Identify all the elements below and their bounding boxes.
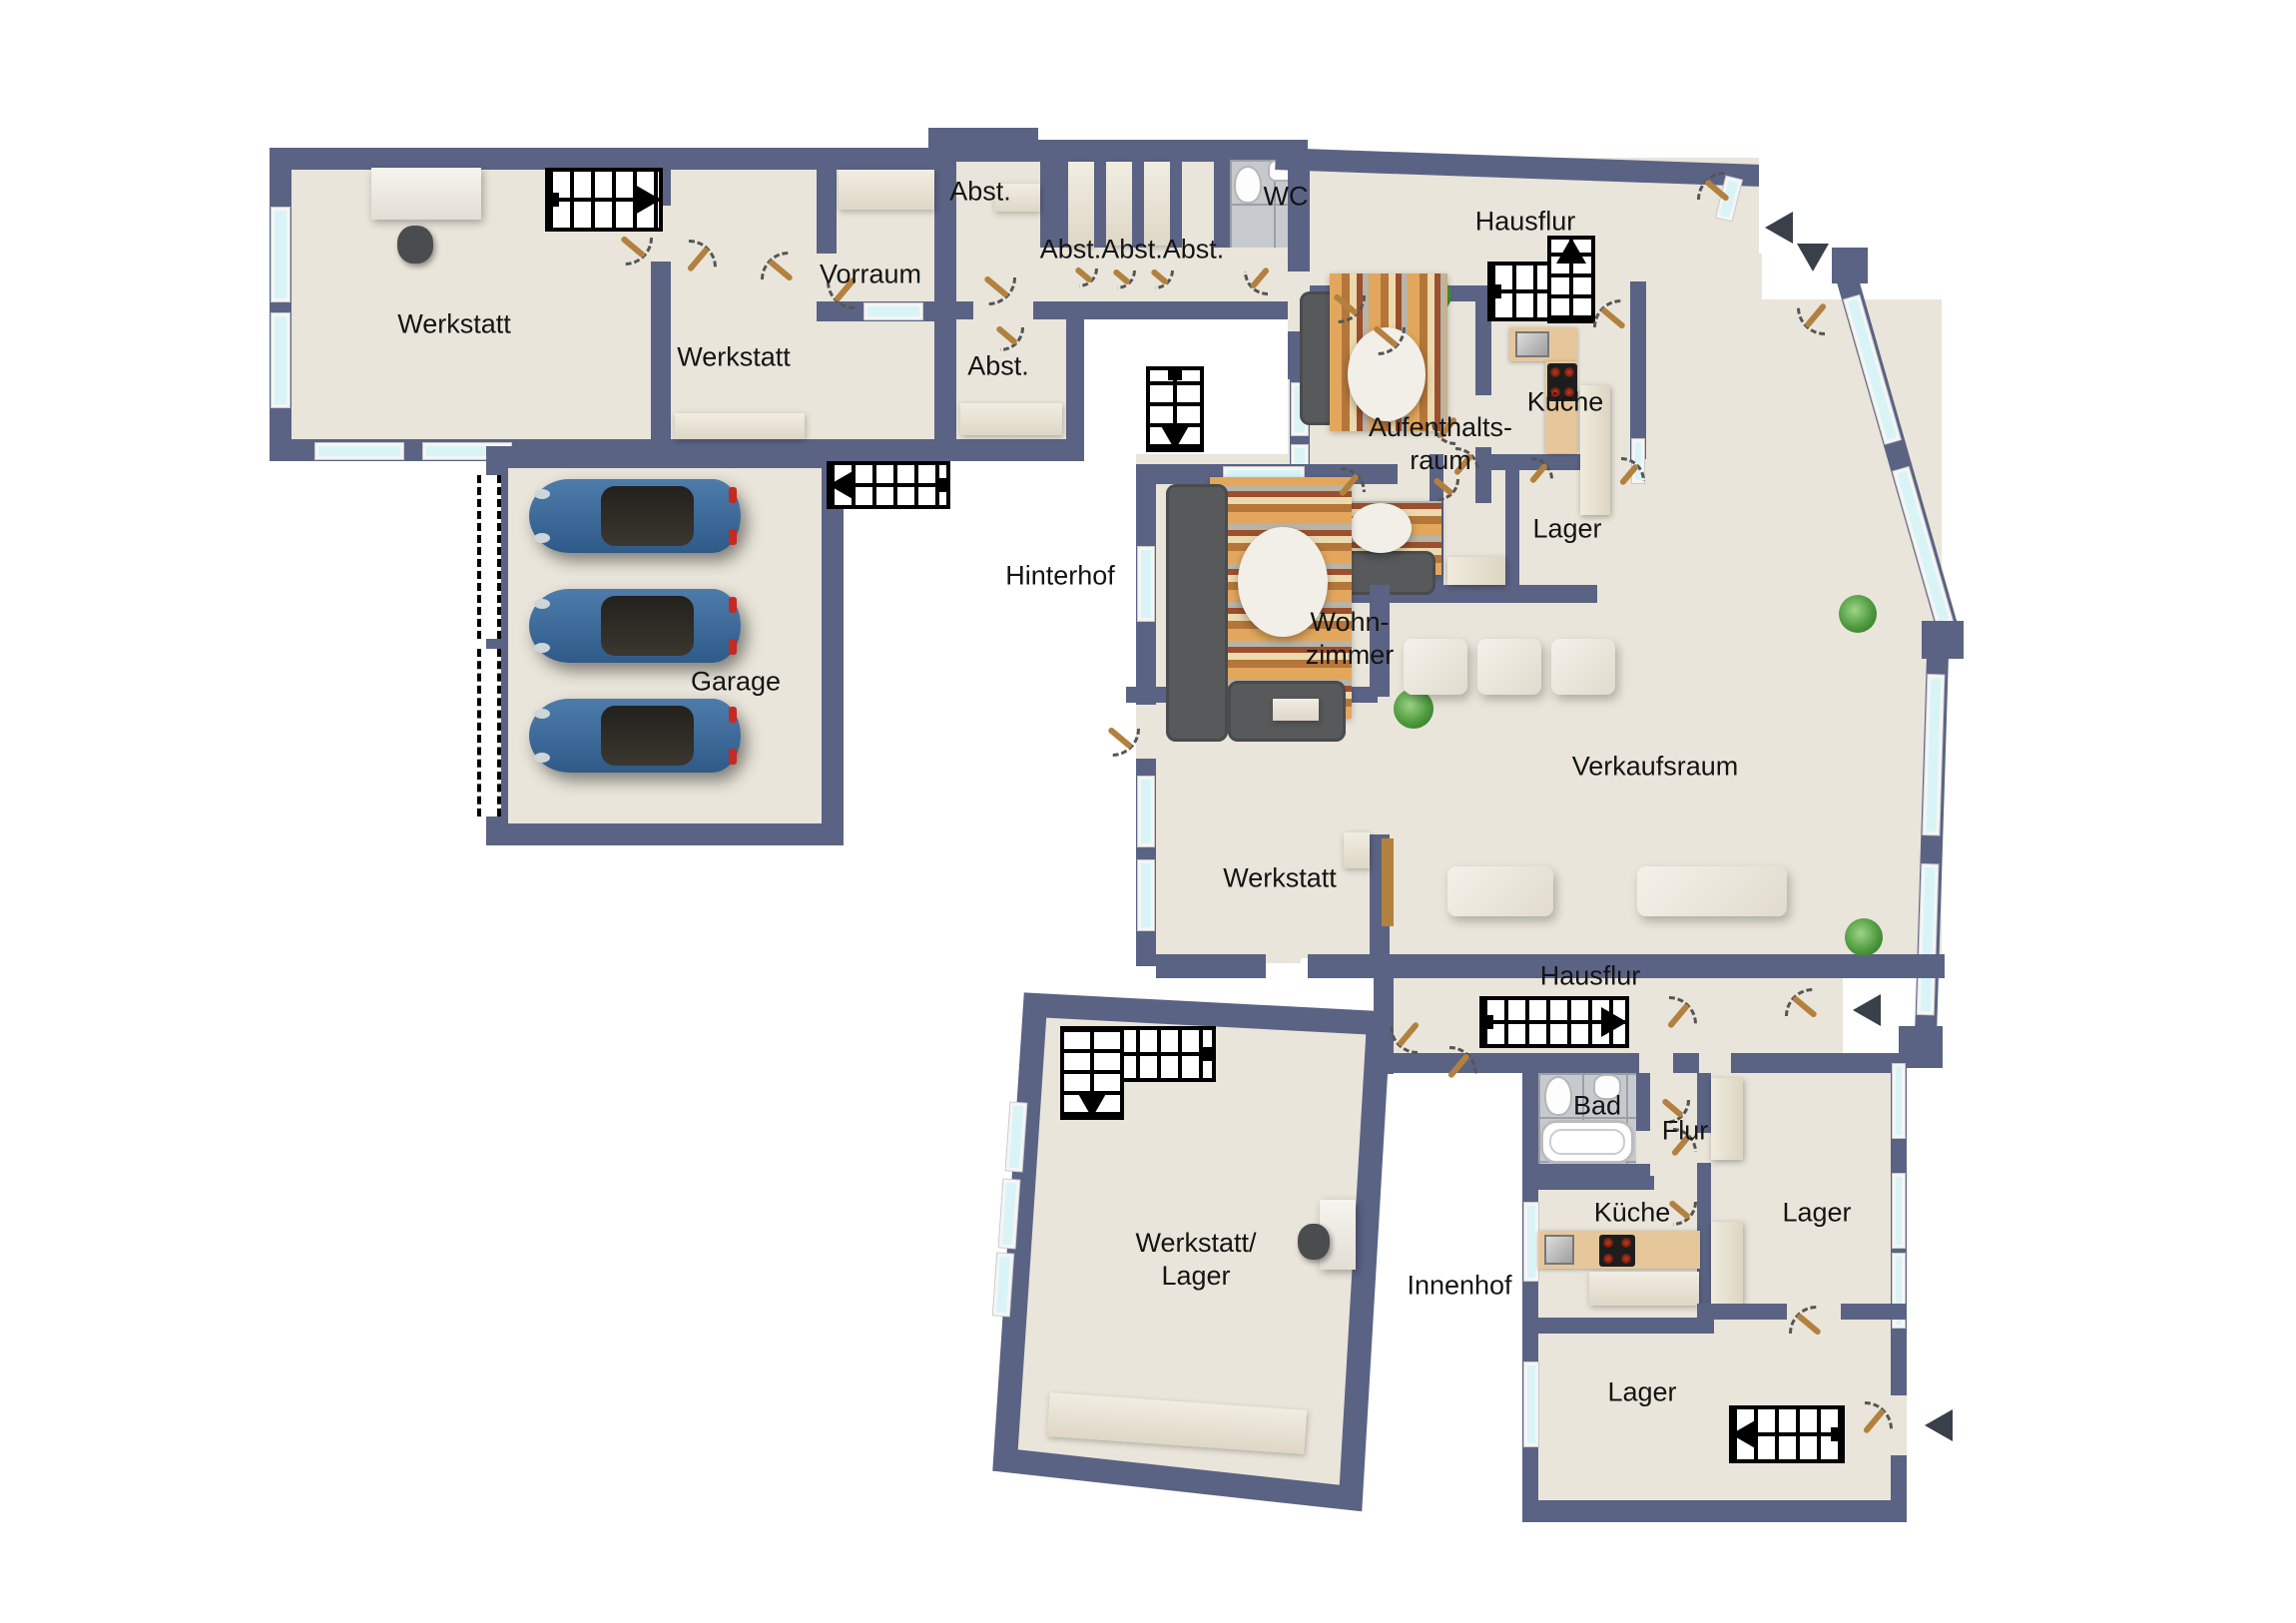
- room-label-werkstatt-lager: Werkstatt/Lager: [1135, 1227, 1256, 1293]
- window: [1893, 1064, 1905, 1138]
- car-headlight-icon: [534, 709, 550, 719]
- room-label-wc: WC: [1264, 181, 1309, 214]
- window: [1138, 860, 1154, 930]
- entry-arrow-icon: [1797, 244, 1829, 271]
- car-headlight-icon: [534, 753, 550, 763]
- door[interactable]: [976, 303, 1024, 351]
- wall: [1731, 1053, 1907, 1073]
- room-label-aufenthaltsraum: Aufenthalts-raum: [1369, 411, 1512, 477]
- entry-arrow-icon: [1765, 212, 1793, 244]
- door[interactable]: [1422, 1046, 1477, 1102]
- stair-start-icon: [545, 193, 559, 207]
- wall: [1922, 621, 1964, 659]
- stairs: [1060, 1026, 1124, 1120]
- office-chair: [397, 226, 433, 264]
- stair-start-icon: [1202, 1047, 1216, 1061]
- desk: [371, 168, 481, 220]
- toilet-icon: [1544, 1076, 1572, 1116]
- car-taillight-icon: [729, 597, 737, 613]
- car: [529, 589, 741, 663]
- wall: [1066, 301, 1084, 459]
- stair-direction-icon: [1160, 424, 1190, 450]
- wall: [486, 446, 844, 468]
- display-table: [1637, 866, 1787, 916]
- stove-icon: [1599, 1235, 1635, 1267]
- car-roof: [601, 706, 694, 767]
- room-label-vorraum: Vorraum: [820, 259, 921, 291]
- room-label-abst-mid: Abst.: [967, 350, 1029, 383]
- shop-window: [1918, 864, 1939, 1014]
- wall: [1378, 1053, 1639, 1073]
- entry-arrow-icon: [1853, 994, 1881, 1026]
- car-headlight-icon: [534, 533, 550, 543]
- room-label-bad: Bad: [1573, 1090, 1621, 1123]
- window: [1138, 777, 1154, 846]
- room-label-abst-row: Abst.Abst.Abst.: [1040, 234, 1225, 267]
- stairs: [1729, 1405, 1845, 1463]
- office-chair: [1298, 1224, 1330, 1260]
- door[interactable]: [1084, 701, 1140, 757]
- room-label-lager-top: Lager: [1532, 513, 1601, 546]
- room-label-wohnzimmer: Wohn-zimmer: [1306, 606, 1395, 672]
- garage-door[interactable]: [477, 475, 501, 639]
- window: [1893, 1174, 1905, 1248]
- wall: [1697, 1304, 1787, 1320]
- stairs: [1146, 366, 1204, 452]
- car-taillight-icon: [729, 529, 737, 545]
- door[interactable]: [761, 252, 817, 307]
- room-label-lager-right: Lager: [1782, 1197, 1851, 1230]
- door[interactable]: [1837, 1401, 1893, 1457]
- display-table: [1447, 866, 1553, 916]
- outdoor-label-hinterhof: Hinterhof: [1005, 560, 1115, 593]
- wall: [1522, 1164, 1650, 1176]
- door[interactable]: [661, 240, 717, 295]
- toilet-icon: [1234, 166, 1262, 204]
- wall: [270, 148, 291, 461]
- room-label-flur: Flur: [1662, 1115, 1709, 1148]
- stair-direction-icon: [1077, 1092, 1107, 1118]
- room-label-werkstatt-mid: Werkstatt: [1223, 862, 1337, 895]
- display-table: [1404, 639, 1467, 695]
- room-label-werkstatt-nw2: Werkstatt: [677, 341, 791, 374]
- stair-direction-icon: [829, 470, 855, 500]
- shelf: [839, 170, 934, 210]
- room-label-kueche-low: Küche: [1594, 1197, 1671, 1230]
- door[interactable]: [1789, 1306, 1845, 1361]
- shelf: [960, 403, 1062, 435]
- car-roof: [601, 596, 694, 657]
- wall: [486, 823, 844, 845]
- wall: [934, 439, 1084, 461]
- room-label-verkaufsraum: Verkaufsraum: [1572, 751, 1739, 784]
- stair-direction-icon: [1556, 238, 1586, 264]
- room-label-abst-nw: Abst.: [949, 176, 1011, 209]
- car-taillight-icon: [729, 639, 737, 655]
- wall: [1522, 1053, 1538, 1522]
- wall: [1156, 954, 1266, 978]
- door[interactable]: [597, 210, 653, 266]
- window: [1524, 1362, 1538, 1446]
- bathtub: [1540, 1120, 1634, 1164]
- window: [272, 208, 289, 301]
- cabinet: [1447, 557, 1505, 585]
- window: [1524, 1203, 1538, 1281]
- stairs: [1479, 996, 1629, 1048]
- car: [529, 479, 741, 553]
- car-headlight-icon: [534, 643, 550, 653]
- plant-icon: [1845, 918, 1883, 956]
- shelf: [1273, 699, 1319, 721]
- room-label-kueche-top: Küche: [1527, 386, 1604, 419]
- stair-start-icon: [1168, 366, 1182, 380]
- door[interactable]: [1593, 299, 1649, 355]
- door[interactable]: [1316, 467, 1366, 517]
- plant-icon: [1839, 595, 1877, 633]
- sink-icon: [1544, 1235, 1574, 1265]
- shop-window: [1923, 675, 1944, 834]
- door[interactable]: [1797, 279, 1853, 335]
- room-label-lager-low: Lager: [1607, 1376, 1676, 1409]
- stair-direction-icon: [1601, 1007, 1627, 1037]
- entry-arrow-icon: [1925, 1409, 1953, 1441]
- wall: [1083, 301, 1288, 319]
- shelf: [1344, 832, 1370, 868]
- wall: [270, 148, 956, 170]
- car-roof: [601, 486, 694, 547]
- shelf: [1589, 1272, 1699, 1306]
- door[interactable]: [1785, 988, 1841, 1044]
- garage-door[interactable]: [477, 649, 501, 816]
- wall: [1358, 954, 1945, 978]
- wall: [1841, 1304, 1907, 1320]
- room-label-garage: Garage: [691, 666, 781, 699]
- cabinet: [1711, 1078, 1743, 1160]
- sink-icon: [1515, 331, 1549, 357]
- sofa: [1166, 484, 1228, 742]
- stair-direction-icon: [1731, 1419, 1757, 1449]
- stair-start-icon: [1487, 284, 1501, 298]
- shelf: [675, 413, 805, 439]
- window: [315, 443, 403, 459]
- wall: [1522, 1500, 1907, 1522]
- wall: [1673, 1053, 1699, 1073]
- car-headlight-icon: [534, 489, 550, 499]
- door[interactable]: [1509, 457, 1553, 501]
- door[interactable]: [1350, 299, 1406, 355]
- door[interactable]: [1244, 248, 1292, 295]
- door[interactable]: [1697, 172, 1753, 228]
- car-taillight-icon: [729, 707, 737, 723]
- stair-start-icon: [936, 478, 950, 492]
- outdoor-label-innenhof: Innenhof: [1407, 1270, 1511, 1303]
- plant-icon: [1394, 689, 1434, 729]
- car-taillight-icon: [729, 487, 737, 503]
- stair-start-icon: [1479, 1015, 1493, 1029]
- cabinet: [1711, 1222, 1743, 1308]
- car: [529, 699, 741, 773]
- wall: [817, 170, 837, 254]
- door[interactable]: [960, 250, 1016, 305]
- room-label-werkstatt-nw: Werkstatt: [397, 308, 511, 341]
- wall: [956, 140, 1308, 162]
- wall: [1538, 1176, 1654, 1190]
- wall: [1522, 1318, 1714, 1334]
- stairs: [1547, 236, 1595, 323]
- window: [1138, 547, 1154, 621]
- display-table: [1477, 639, 1541, 695]
- door[interactable]: [1597, 457, 1645, 505]
- room-label-hausflur-top: Hausflur: [1475, 206, 1576, 239]
- counter: [1382, 838, 1394, 926]
- stairs: [827, 461, 950, 509]
- floor-plan: Werkstatt Werkstatt Vorraum Abst. Abst.A…: [0, 0, 2296, 1623]
- window: [272, 313, 289, 407]
- door[interactable]: [1641, 996, 1697, 1052]
- display-table: [1551, 639, 1615, 695]
- room-label-hausflur-low: Hausflur: [1540, 960, 1641, 993]
- car-headlight-icon: [534, 599, 550, 609]
- car-taillight-icon: [729, 749, 737, 765]
